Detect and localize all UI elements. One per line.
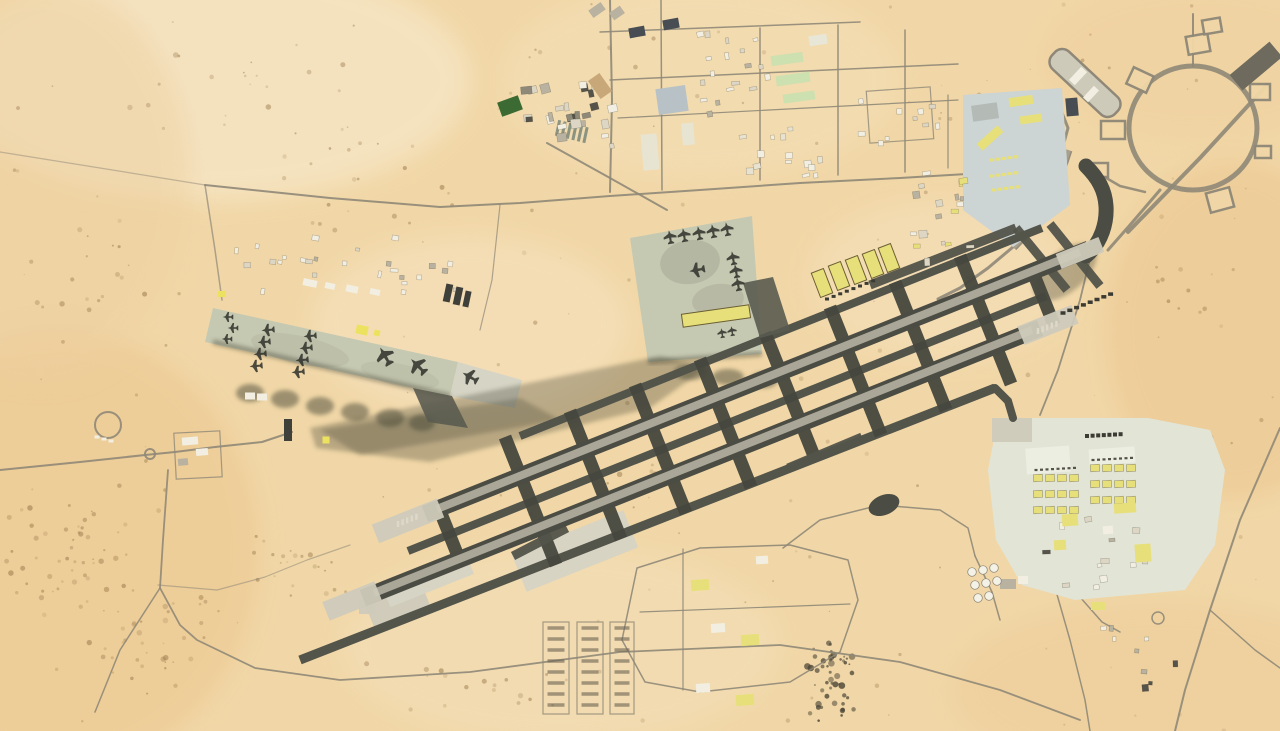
aerial-imagery-canvas: [0, 0, 1280, 731]
satellite-map-view[interactable]: Aerial satellite view of a desert airbas…: [0, 0, 1280, 731]
